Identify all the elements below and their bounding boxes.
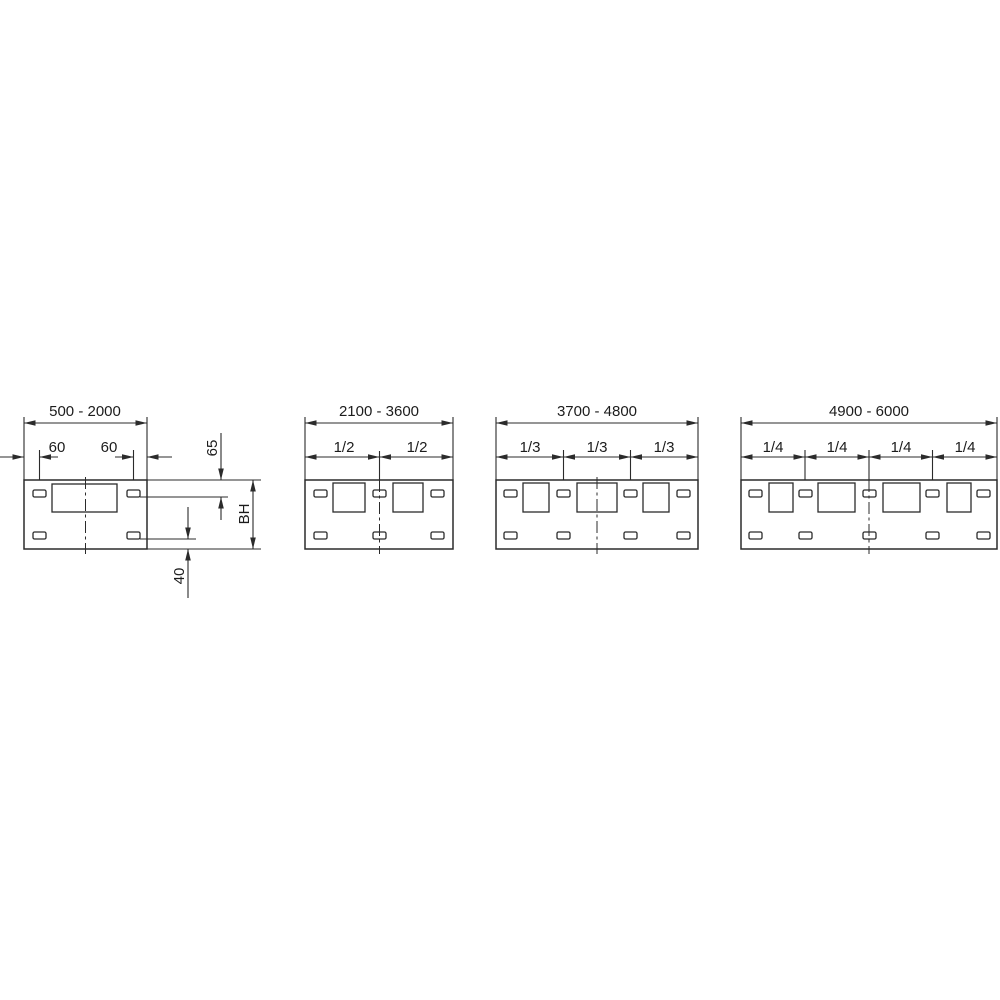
dimension-label: 1/4: [827, 439, 848, 456]
height-dimensions: 65 BH 40: [140, 433, 261, 598]
dimension-label: 1/2: [334, 439, 355, 456]
dimension-drawing: 500 - 2000 60 60 65 BH 40: [0, 0, 1000, 1000]
dimension-label: 40: [171, 568, 188, 585]
mounting-slot: [431, 532, 444, 539]
mounting-slot: [977, 490, 990, 497]
mounting-slot: [557, 490, 570, 497]
mounting-slot: [314, 532, 327, 539]
panel-cutout: [818, 483, 855, 512]
diagram-panel-3: 3700 - 4800 1/3 1/3 1/3: [496, 403, 698, 554]
mounting-slot: [624, 532, 637, 539]
dimension-label: BH: [236, 504, 253, 525]
mounting-slot: [799, 490, 812, 497]
mounting-slot: [677, 490, 690, 497]
diagram-panel-4: 4900 - 6000 1/4 1/4 1/4 1/4: [741, 403, 997, 554]
slot-offset-dimensions: 60 60: [0, 439, 172, 480]
mounting-slot: [431, 490, 444, 497]
dimension-label: 1/2: [407, 439, 428, 456]
dimension-label: 1/4: [763, 439, 784, 456]
mounting-slot: [33, 532, 46, 539]
technical-drawing-canvas: 500 - 2000 60 60 65 BH 40: [0, 0, 1000, 1000]
panel-cutout: [769, 483, 793, 512]
width-range-dimension: 500 - 2000: [24, 403, 147, 480]
dimension-label: 1/3: [520, 439, 541, 456]
panel-cutout: [333, 483, 365, 512]
dimension-label: 1/3: [654, 439, 675, 456]
mounting-slot: [799, 532, 812, 539]
dimension-label: 60: [101, 439, 118, 456]
diagram-panel-1: 500 - 2000 60 60 65 BH 40: [0, 403, 261, 598]
mounting-slot: [127, 490, 140, 497]
mounting-slot: [127, 532, 140, 539]
mounting-slot: [926, 532, 939, 539]
dimension-label: 500 - 2000: [49, 403, 121, 420]
mounting-slot: [977, 532, 990, 539]
dimension-label: 3700 - 4800: [557, 403, 637, 420]
panel-cutout: [52, 484, 117, 512]
mounting-slot: [926, 490, 939, 497]
mounting-slot: [504, 490, 517, 497]
fraction-dimensions: 1/4 1/4 1/4 1/4: [741, 439, 997, 480]
mounting-slot: [749, 490, 762, 497]
dimension-label: 4900 - 6000: [829, 403, 909, 420]
mounting-slot: [314, 490, 327, 497]
dimension-label: 2100 - 3600: [339, 403, 419, 420]
panel-cutout: [883, 483, 920, 512]
mounting-slot: [749, 532, 762, 539]
dimension-label: 1/3: [587, 439, 608, 456]
panel-cutout: [947, 483, 971, 512]
dimension-label: 1/4: [955, 439, 976, 456]
panel-cutouts: [523, 483, 669, 512]
dimension-label: 65: [204, 440, 221, 457]
fraction-dimensions: 1/3 1/3 1/3: [496, 439, 698, 480]
panel-cutout: [393, 483, 423, 512]
panel-cutout: [643, 483, 669, 512]
mounting-slot: [504, 532, 517, 539]
mounting-slots: [33, 490, 140, 539]
dimension-label: 1/4: [891, 439, 912, 456]
mounting-slot: [677, 532, 690, 539]
diagram-panel-2: 2100 - 3600 1/2 1/2: [305, 403, 453, 554]
mounting-slot: [33, 490, 46, 497]
dimension-label: 60: [49, 439, 66, 456]
mounting-slot: [557, 532, 570, 539]
mounting-slot: [624, 490, 637, 497]
panel-cutout: [523, 483, 549, 512]
